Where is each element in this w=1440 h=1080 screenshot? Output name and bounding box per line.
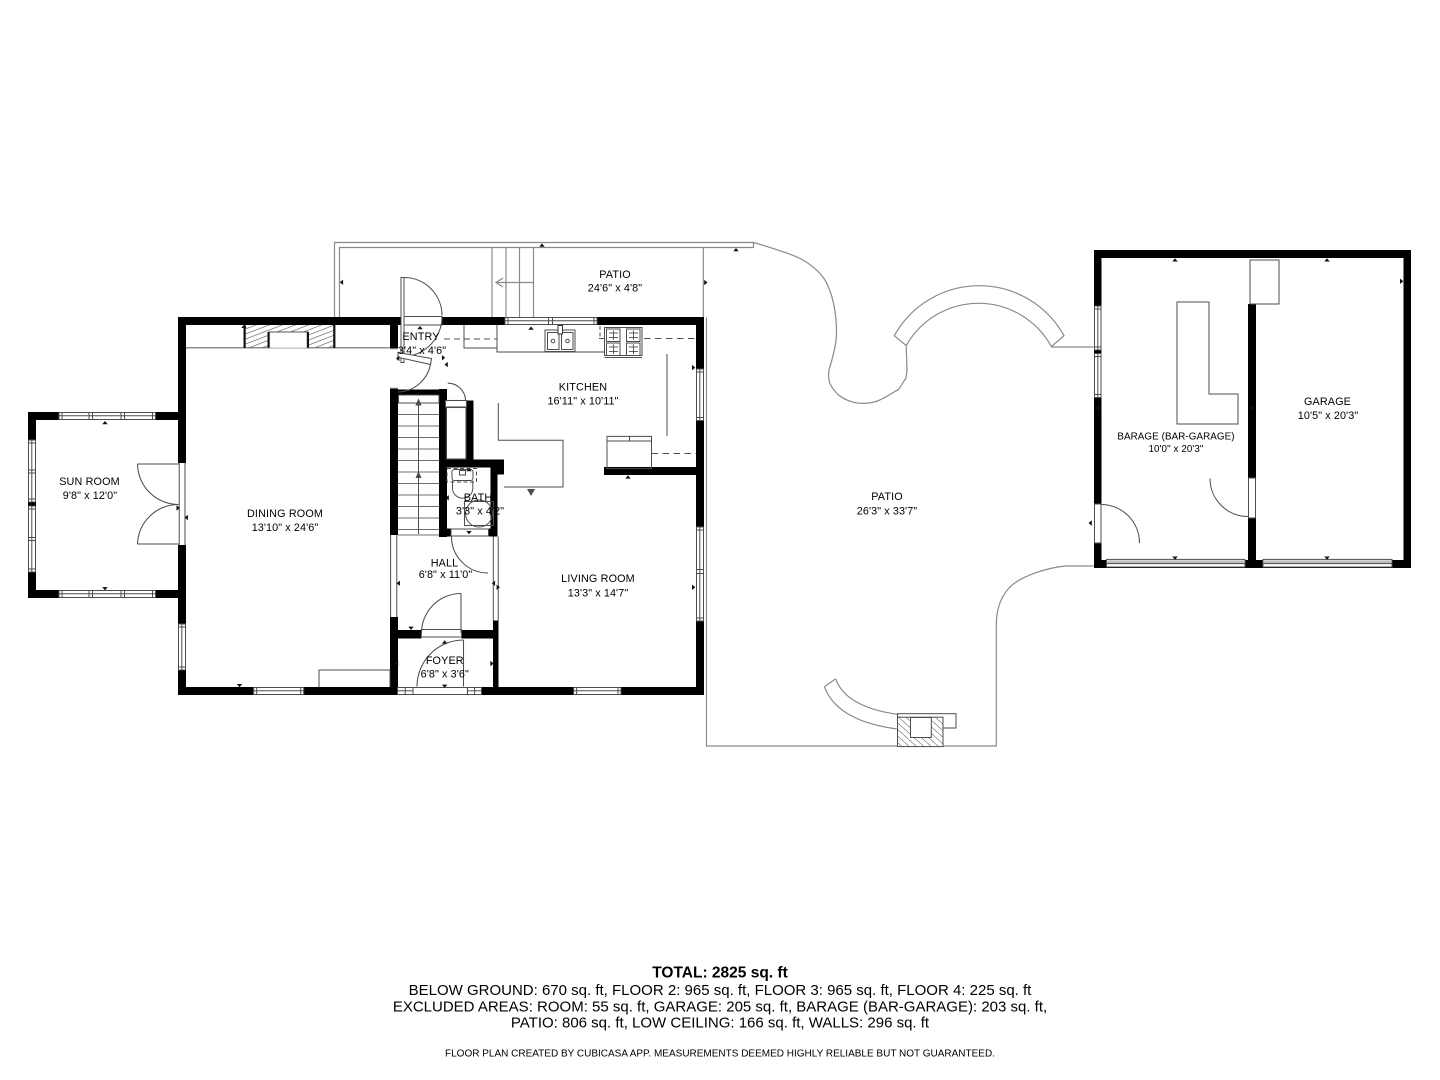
svg-text:TOTAL: 2825 sq. ft: TOTAL: 2825 sq. ft (652, 965, 788, 982)
svg-text:KITCHEN: KITCHEN (559, 382, 607, 394)
svg-text:PATIO: PATIO (871, 491, 903, 503)
svg-text:HALL: HALL (431, 558, 459, 570)
svg-text:PATIO: 806 sq. ft, LOW CEILING: PATIO: 806 sq. ft, LOW CEILING: 166 sq. … (511, 1014, 930, 1031)
svg-text:3'3" x 4'2": 3'3" x 4'2" (456, 506, 504, 518)
svg-text:ENTRY: ENTRY (402, 331, 439, 343)
svg-text:SUN ROOM: SUN ROOM (59, 476, 120, 488)
svg-text:BARAGE (BAR-GARAGE): BARAGE (BAR-GARAGE) (1117, 432, 1234, 443)
svg-text:BATH: BATH (464, 492, 493, 504)
svg-text:6'8" x 11'0": 6'8" x 11'0" (419, 569, 473, 581)
svg-text:10'5" x 20'3": 10'5" x 20'3" (1298, 410, 1359, 422)
svg-text:EXCLUDED AREAS: ROOM: 55 sq. f: EXCLUDED AREAS: ROOM: 55 sq. ft, GARAGE:… (393, 998, 1047, 1015)
svg-text:6'8" x 3'6": 6'8" x 3'6" (421, 669, 469, 681)
svg-text:9'8" x 12'0": 9'8" x 12'0" (63, 490, 117, 502)
svg-text:LIVING ROOM: LIVING ROOM (561, 573, 635, 585)
svg-text:FOYER: FOYER (426, 655, 464, 667)
svg-text:16'11" x 10'11": 16'11" x 10'11" (547, 396, 618, 408)
svg-text:24'6" x 4'8": 24'6" x 4'8" (588, 283, 642, 295)
svg-text:26'3" x 33'7": 26'3" x 33'7" (857, 506, 918, 518)
svg-text:13'10" x 24'6": 13'10" x 24'6" (252, 522, 319, 534)
svg-text:FLOOR PLAN CREATED BY CUBICASA: FLOOR PLAN CREATED BY CUBICASA APP. MEAS… (445, 1049, 995, 1060)
svg-text:13'3" x 14'7": 13'3" x 14'7" (568, 588, 629, 600)
svg-text:GARAGE: GARAGE (1304, 396, 1351, 408)
svg-text:DINING ROOM: DINING ROOM (247, 508, 323, 520)
svg-text:BELOW GROUND: 670 sq. ft, FLOO: BELOW GROUND: 670 sq. ft, FLOOR 2: 965 s… (409, 982, 1033, 999)
svg-text:10'0" x 20'3": 10'0" x 20'3" (1148, 444, 1203, 455)
svg-text:PATIO: PATIO (599, 269, 631, 281)
svg-text:3'4" x 4'6": 3'4" x 4'6" (398, 345, 446, 357)
